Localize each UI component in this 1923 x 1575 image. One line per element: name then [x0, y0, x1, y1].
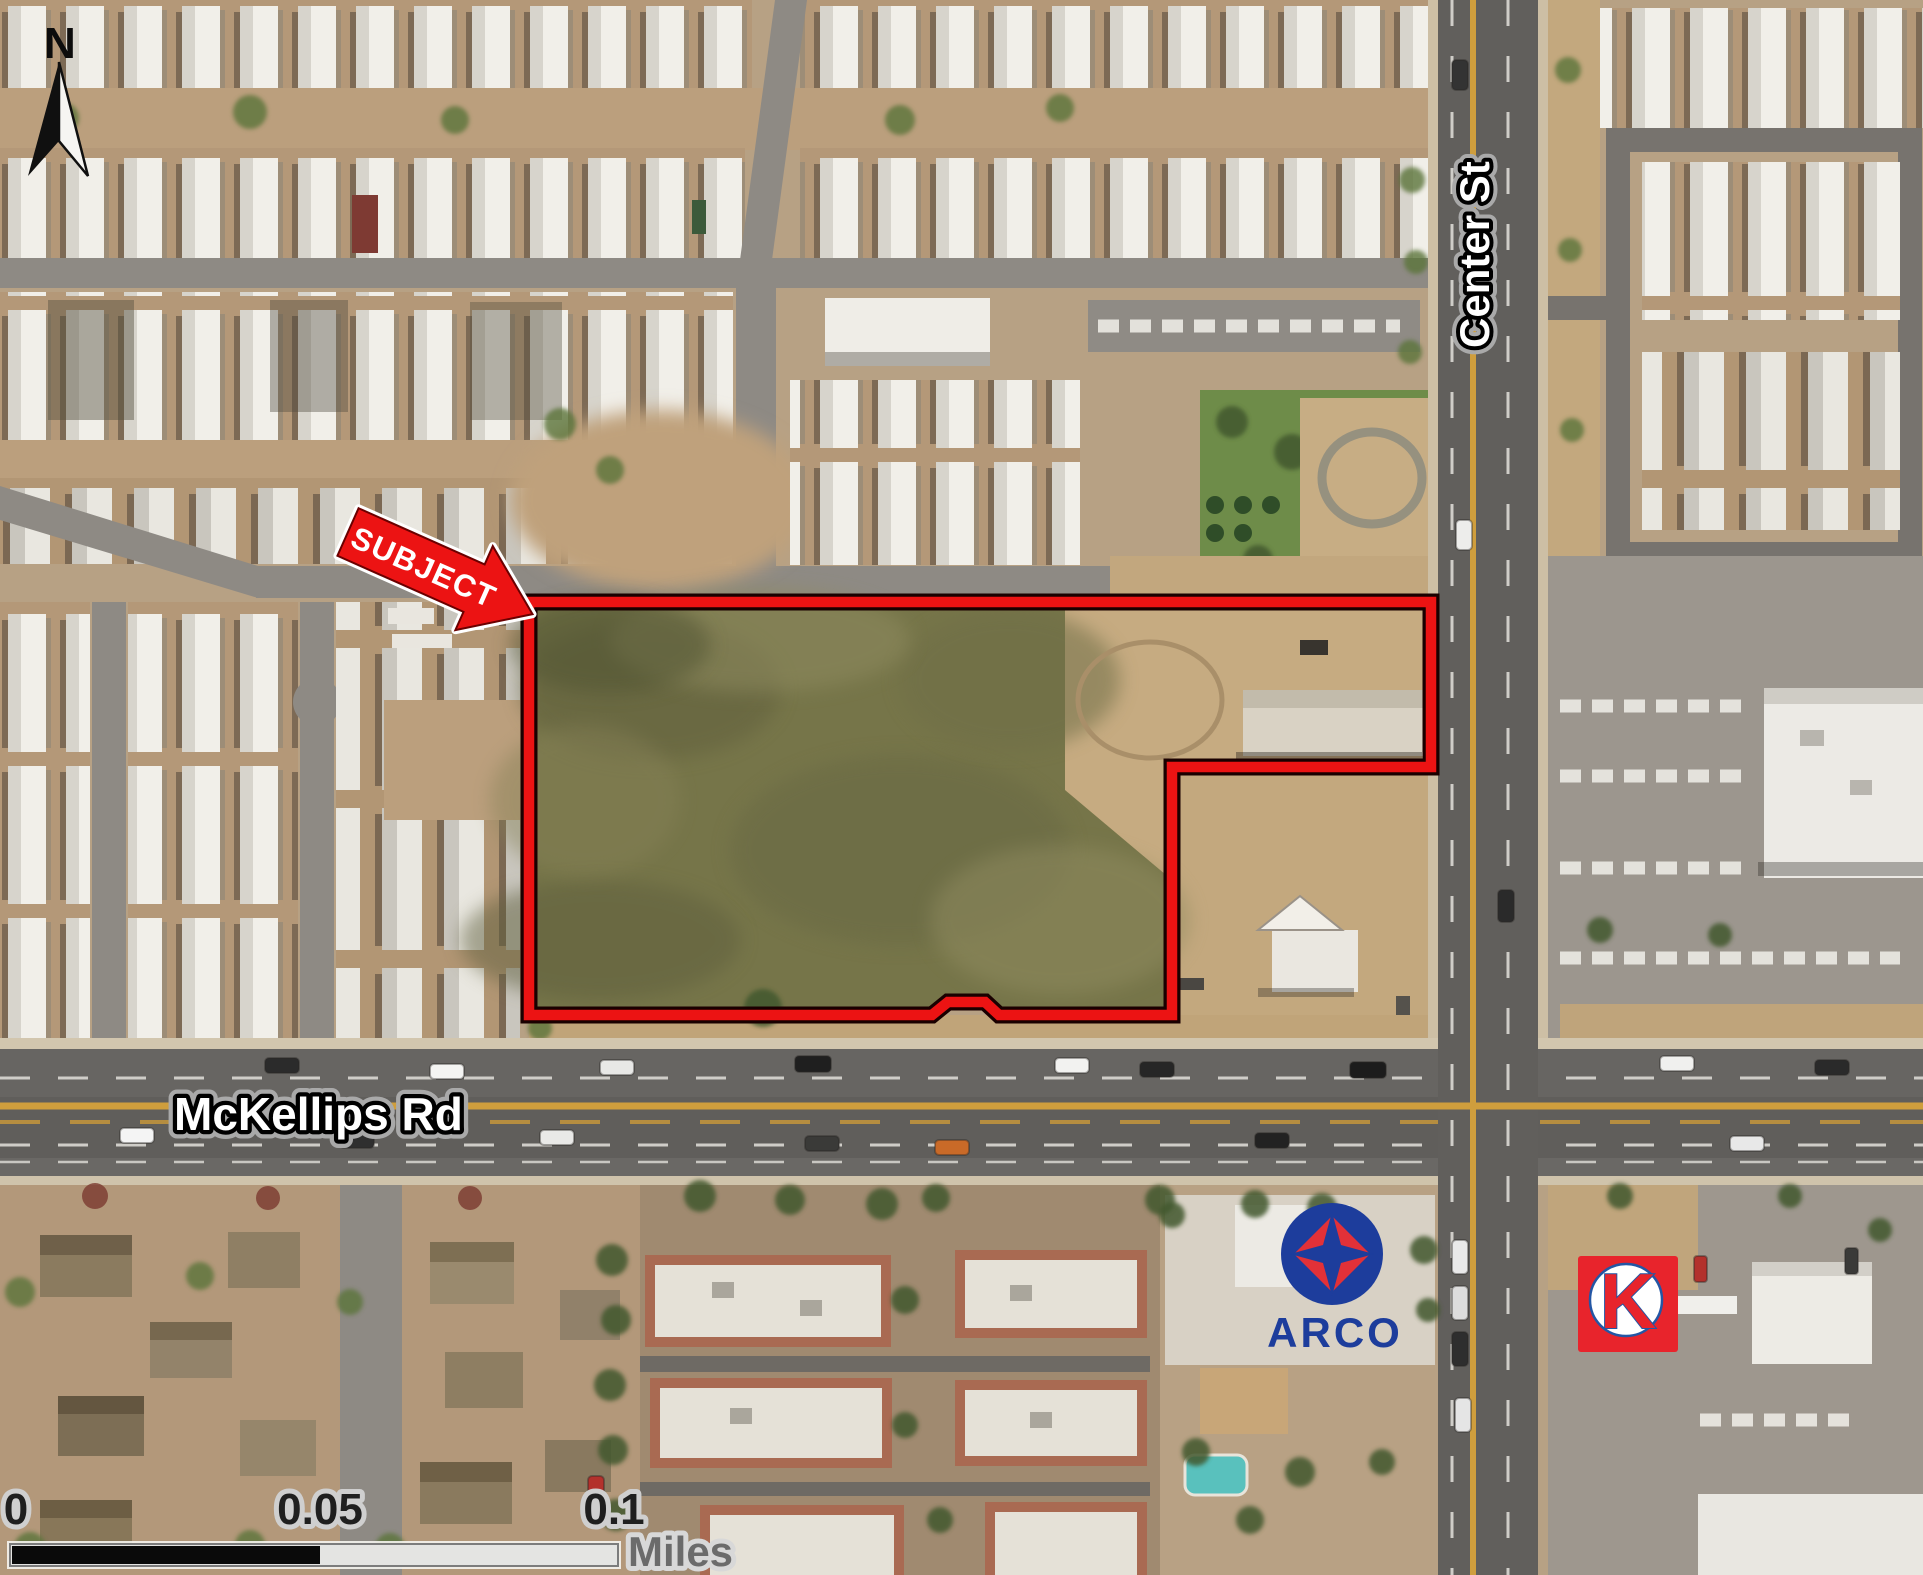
west-sidewalk: [1428, 0, 1438, 1038]
south-sidewalk: [0, 1176, 1923, 1185]
arco-spark-icon: [1281, 1203, 1383, 1305]
svg-text:0.1: 0.1: [583, 1485, 644, 1534]
east-sidewalk: [1538, 0, 1548, 1038]
scale-units-label: Miles Miles: [628, 1528, 733, 1575]
excluded-corner-lot: [1172, 767, 1432, 1022]
circle-k-logo: K: [1578, 1256, 1678, 1352]
svg-text:Center St: Center St: [1451, 161, 1498, 348]
apartment-complex: [640, 1185, 1160, 1575]
arco-label: ARCO: [1267, 1309, 1403, 1356]
aerial-map: SUBJECT Center St Center St McKellips Rd…: [0, 0, 1923, 1575]
scale-tick-0: 0 0: [4, 1485, 28, 1534]
scale-tick-01: 0.1 0.1: [583, 1485, 644, 1534]
north-sidewalk: [0, 1038, 1923, 1049]
mckellips-rd-label: McKellips Rd McKellips Rd: [174, 1088, 463, 1140]
svg-text:0: 0: [4, 1485, 28, 1534]
center-st-label: Center St Center St: [1451, 161, 1498, 348]
scale-tick-005: 0.05 0.05: [277, 1485, 363, 1534]
north-label: N: [44, 19, 76, 68]
circle-k-letter: K: [1600, 1257, 1656, 1345]
circle-k-area: [1548, 1183, 1923, 1575]
svg-text:McKellips Rd: McKellips Rd: [174, 1088, 463, 1140]
svg-text:Miles: Miles: [628, 1528, 733, 1575]
svg-text:0.05: 0.05: [277, 1485, 363, 1534]
